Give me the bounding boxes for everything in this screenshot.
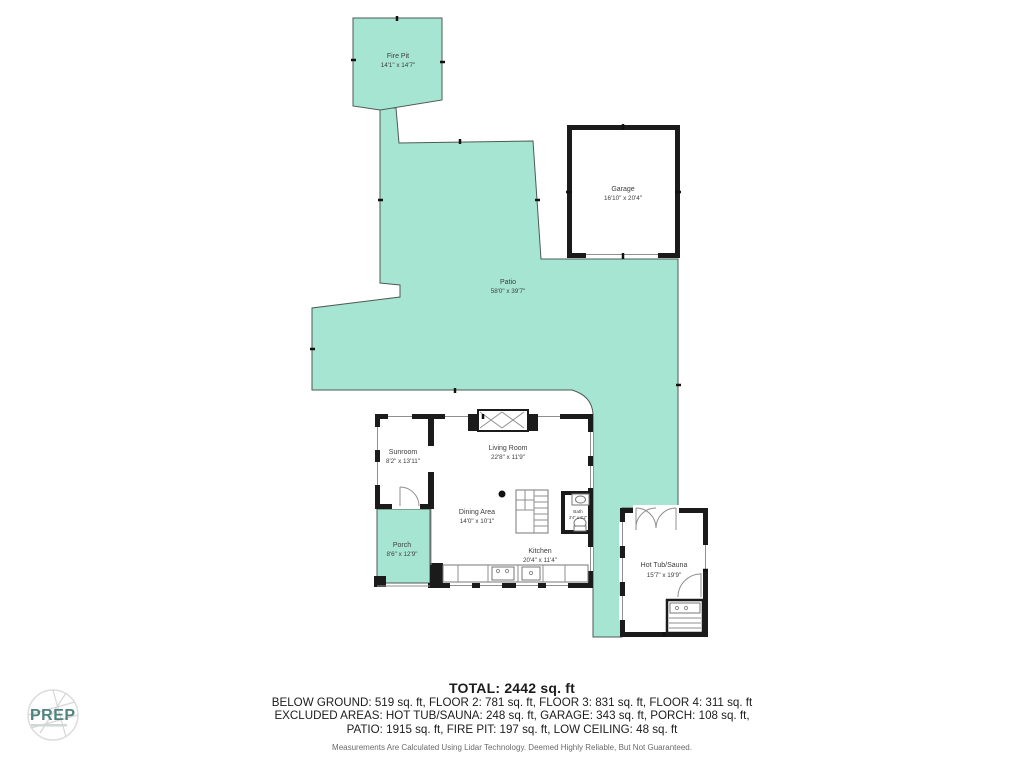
hot-tub-label: Hot Tub/Sauna [641, 562, 688, 569]
fireplace [468, 410, 538, 431]
fire-pit-area: Fire Pit 14'1" x 14'7" [353, 18, 442, 110]
hot-tub-dims: 15'7" x 19'9" [647, 572, 682, 579]
kitchen-dims: 20'4" x 11'4" [523, 557, 557, 564]
floor-plan-drawing: Patio 58'0" x 39'7" Fire Pit 14'1" x 14'… [0, 0, 1024, 768]
garage-room: Garage 16'10" x 20'4" [570, 128, 678, 259]
living-room-dims: 22'8" x 11'9" [491, 454, 525, 461]
living-room-label: Living Room [489, 445, 528, 452]
sunroom-label: Sunroom [389, 449, 418, 456]
hot-tub-windows-left [619, 522, 626, 620]
main-house: Bath 3'4" x 6'2" [374, 410, 593, 588]
excluded-areas-line-2: PATIO: 1915 sq. ft, FIRE PIT: 197 sq. ft… [0, 723, 1024, 736]
sunroom-divider-upper [428, 414, 434, 446]
patio-label: Patio [500, 279, 516, 286]
porch-dims: 8'6" x 12'9" [386, 551, 417, 558]
column-dot [499, 491, 506, 498]
patio-dims: 58'0" x 39'7" [491, 288, 526, 295]
bath-dims: 3'4" x 6'2" [569, 515, 588, 520]
hot-tub-sauna-room: Hot Tub/Sauna 15'7" x 19'9" [619, 505, 709, 635]
floor-plan-page: Patio 58'0" x 39'7" Fire Pit 14'1" x 14'… [0, 0, 1024, 768]
kitchen-label: Kitchen [528, 548, 551, 555]
porch-kitchen-wall [430, 563, 443, 588]
staircase [516, 490, 548, 533]
sunroom-divider-lower [428, 472, 434, 509]
disclaimer-text: Measurements Are Calculated Using Lidar … [0, 743, 1024, 752]
porch-corner-post [374, 576, 386, 587]
sauna-bench [667, 600, 703, 633]
fire-pit-label: Fire Pit [387, 53, 409, 60]
total-area-text: TOTAL: 2442 sq. ft [0, 680, 1024, 696]
dining-area-dims: 14'0" x 10'1" [460, 518, 495, 525]
porch-label: Porch [393, 542, 411, 549]
fire-pit-dims: 14'1" x 14'7" [381, 62, 416, 69]
prep-logo: PREP [22, 686, 84, 748]
garage-label: Garage [611, 186, 634, 193]
aperture-icon: PREP [22, 686, 84, 748]
excluded-areas-line: EXCLUDED AREAS: HOT TUB/SAUNA: 248 sq. f… [0, 709, 1024, 722]
garage-dims: 16'10" x 20'4" [604, 195, 642, 202]
logo-text: PREP [30, 707, 76, 724]
floor-areas-line: BELOW GROUND: 519 sq. ft, FLOOR 2: 781 s… [0, 696, 1024, 709]
kitchen-counters [443, 565, 588, 582]
bath-label: Bath [573, 509, 583, 514]
area-summary: TOTAL: 2442 sq. ft BELOW GROUND: 519 sq.… [0, 680, 1024, 752]
dining-area-label: Dining Area [459, 509, 495, 516]
logo-tagline-bar [31, 724, 67, 727]
hot-tub-window-right [702, 545, 709, 571]
sunroom-dims: 8'2" x 13'11" [386, 458, 420, 465]
